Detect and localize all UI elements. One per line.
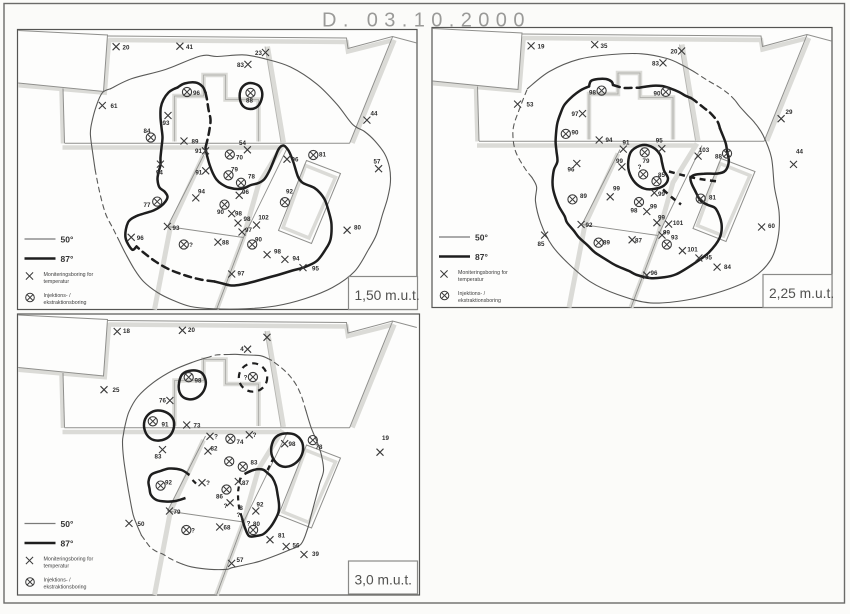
svg-text:98: 98 [235,211,242,218]
svg-text:99: 99 [658,215,665,222]
svg-text:99: 99 [650,203,657,210]
svg-text:temperatur: temperatur [44,279,70,285]
svg-text:87°: 87° [475,252,488,262]
svg-text:91: 91 [162,421,169,428]
svg-text:61: 61 [111,103,118,110]
svg-text:50: 50 [138,521,145,528]
svg-text:96: 96 [292,157,299,164]
svg-text:20: 20 [123,44,130,51]
svg-text:?: ? [244,374,248,381]
svg-text:93: 93 [163,120,170,127]
svg-text:Injektions- /: Injektions- / [458,291,486,297]
svg-text:74: 74 [237,439,244,446]
svg-text:80: 80 [253,521,260,528]
svg-text:92: 92 [586,222,593,229]
svg-text:91: 91 [623,140,630,147]
svg-text:89: 89 [603,239,610,246]
svg-text:18: 18 [123,328,130,335]
svg-text:101: 101 [687,246,698,253]
svg-text:39: 39 [312,551,319,558]
svg-text:95: 95 [656,137,663,144]
svg-text:96: 96 [651,270,658,277]
svg-text:87: 87 [242,480,249,487]
svg-text:89: 89 [192,138,199,145]
svg-text:98: 98 [195,377,202,384]
svg-text:103: 103 [699,147,710,154]
svg-text:?: ? [189,242,193,249]
svg-text:92: 92 [286,188,293,195]
svg-text:80: 80 [354,224,361,231]
svg-text:84: 84 [724,264,731,271]
svg-text:4: 4 [240,346,244,353]
svg-text:44: 44 [371,111,378,118]
svg-text:89: 89 [580,193,587,200]
svg-text:82: 82 [211,445,218,452]
svg-text:81: 81 [709,195,716,202]
svg-text:ekstraktionsboring: ekstraktionsboring [44,300,87,306]
svg-text:85: 85 [658,172,665,179]
svg-text:57: 57 [374,158,381,165]
svg-text:102: 102 [258,215,269,222]
svg-text:90: 90 [654,91,661,98]
svg-text:93: 93 [671,235,678,242]
svg-text:?: ? [237,512,241,519]
svg-text:84: 84 [144,128,151,135]
svg-text:Injektions- /: Injektions- / [44,293,72,299]
svg-text:99: 99 [663,229,670,236]
svg-text:Moniteringsboring for: Moniteringsboring for [458,270,508,276]
svg-text:50°: 50° [475,233,488,243]
svg-text:8: 8 [239,505,243,512]
svg-text:97: 97 [238,271,245,278]
svg-text:56: 56 [293,542,300,549]
svg-text:20: 20 [671,48,678,55]
svg-text:20: 20 [188,327,195,334]
svg-text:79: 79 [174,509,181,516]
svg-text:85: 85 [538,241,545,248]
svg-text:90: 90 [572,129,579,136]
svg-text:94: 94 [606,137,613,144]
svg-text:95: 95 [312,266,319,273]
svg-text:77: 77 [144,202,151,209]
svg-text:2,25 m.u.t.: 2,25 m.u.t. [769,286,834,301]
svg-text:94: 94 [156,169,163,176]
svg-text:23: 23 [255,50,262,57]
svg-text:79: 79 [231,167,238,174]
svg-text:50°: 50° [61,235,74,245]
svg-text:Injektions- /: Injektions- / [44,578,72,584]
svg-text:90: 90 [255,236,262,243]
svg-text:92: 92 [257,501,264,508]
svg-text:88: 88 [246,97,253,104]
svg-text:98: 98 [289,441,296,448]
svg-text:97: 97 [572,111,579,118]
svg-text:?: ? [638,164,642,171]
svg-text:98: 98 [631,207,638,214]
svg-text:19: 19 [538,43,545,50]
svg-text:90: 90 [217,209,224,216]
svg-text:86: 86 [216,493,223,500]
svg-text:19: 19 [382,435,389,442]
svg-text:88: 88 [222,239,229,246]
svg-text:99: 99 [613,185,620,192]
svg-text:97: 97 [245,227,252,234]
svg-text:98: 98 [274,248,281,255]
svg-text:60: 60 [768,223,775,230]
svg-text:ekstraktionsboring: ekstraktionsboring [44,585,87,591]
svg-text:87°: 87° [61,254,74,264]
svg-text:78: 78 [248,174,255,181]
svg-text:78: 78 [316,444,323,451]
svg-text:81: 81 [319,151,326,158]
svg-text:?: ? [224,503,228,510]
svg-text:3,0 m.u.t.: 3,0 m.u.t. [355,573,413,588]
svg-text:91: 91 [195,170,202,177]
svg-text:83: 83 [155,453,162,460]
svg-text:81: 81 [278,533,285,540]
svg-text:98: 98 [589,89,596,96]
svg-text:1,50 m.u.t.: 1,50 m.u.t. [355,288,420,303]
svg-text:93: 93 [173,225,180,232]
svg-text:29: 29 [786,109,793,116]
svg-text:88: 88 [715,153,722,160]
svg-text:91: 91 [195,148,202,155]
svg-text:87: 87 [635,237,642,244]
svg-text:?: ? [191,527,195,534]
svg-text:83: 83 [251,460,258,467]
svg-text:79: 79 [643,158,650,165]
svg-text:68: 68 [224,524,231,531]
svg-text:92: 92 [165,479,172,486]
svg-text:?: ? [253,432,257,439]
svg-text:95: 95 [705,254,712,261]
svg-text:83: 83 [652,60,659,67]
svg-text:temperatur: temperatur [44,564,70,570]
svg-text:44: 44 [796,148,803,155]
svg-text:99: 99 [616,158,623,165]
svg-text:41: 41 [186,44,193,51]
svg-text:50°: 50° [61,519,74,529]
svg-text:99: 99 [658,191,665,198]
svg-text:?: ? [206,480,210,487]
svg-text:94: 94 [198,188,205,195]
svg-text:57: 57 [237,557,244,564]
svg-text:73: 73 [194,422,201,429]
svg-text:98: 98 [244,216,251,223]
svg-text:87°: 87° [61,539,74,549]
svg-text:54: 54 [239,140,246,147]
svg-text:25: 25 [113,387,120,394]
svg-text:76: 76 [159,397,166,404]
svg-text:101: 101 [673,220,684,227]
svg-text:70: 70 [236,154,243,161]
svg-text:96: 96 [568,166,575,173]
svg-text:ekstraktionsboring: ekstraktionsboring [458,298,501,304]
svg-text:temperatur: temperatur [458,277,484,283]
svg-text:?: ? [214,434,218,441]
svg-text:83: 83 [237,62,244,69]
svg-text:96: 96 [242,189,249,196]
svg-text:96: 96 [137,235,144,242]
svg-text:94: 94 [293,255,300,262]
svg-text:53: 53 [527,102,534,109]
svg-text:Moniteringsboring for: Moniteringsboring for [44,272,94,278]
svg-text:Moniteringsboring for: Moniteringsboring for [44,557,94,563]
svg-text:35: 35 [601,43,608,50]
svg-text:96: 96 [193,90,200,97]
